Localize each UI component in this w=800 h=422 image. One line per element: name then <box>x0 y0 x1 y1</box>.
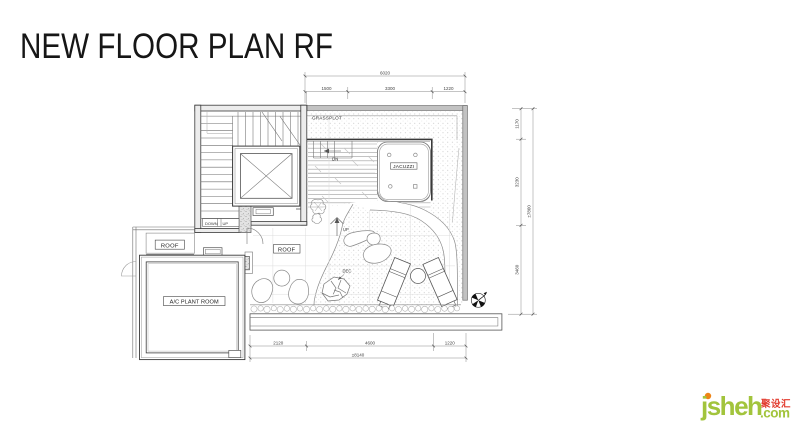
svg-text:3230: 3230 <box>515 177 520 188</box>
svg-text:4600: 4600 <box>365 340 376 345</box>
svg-text:JACUZZI: JACUZZI <box>393 164 414 170</box>
svg-text:ROOF: ROOF <box>161 243 179 249</box>
svg-text:DN: DN <box>332 157 338 162</box>
svg-text:DEC: DEC <box>343 269 352 274</box>
svg-text:3460: 3460 <box>515 264 520 275</box>
svg-text:1170: 1170 <box>515 119 520 129</box>
svg-text:UP: UP <box>343 227 349 232</box>
svg-text:1500: 1500 <box>321 86 332 91</box>
svg-text:A/C PLANT ROOM: A/C PLANT ROOM <box>170 300 219 306</box>
svg-text:聚设汇: 聚设汇 <box>760 398 791 410</box>
svg-text:ROOF: ROOF <box>278 247 296 253</box>
svg-text:jsheh: jsheh <box>700 391 762 421</box>
svg-text:2120: 2120 <box>273 340 284 345</box>
svg-text:DOWN: DOWN <box>205 221 218 226</box>
svg-text:1220: 1220 <box>443 86 454 91</box>
svg-text:NEW FLOOR PLAN RF: NEW FLOOR PLAN RF <box>20 26 333 66</box>
svg-text:3300: 3300 <box>385 86 396 91</box>
svg-text:±7860: ±7860 <box>527 205 532 218</box>
svg-text:±8140: ±8140 <box>352 352 365 357</box>
svg-text:1220: 1220 <box>445 340 456 345</box>
svg-text:6020: 6020 <box>380 70 391 75</box>
svg-text:GRASSPLOT: GRASSPLOT <box>312 116 342 121</box>
svg-text:UP: UP <box>223 221 229 226</box>
